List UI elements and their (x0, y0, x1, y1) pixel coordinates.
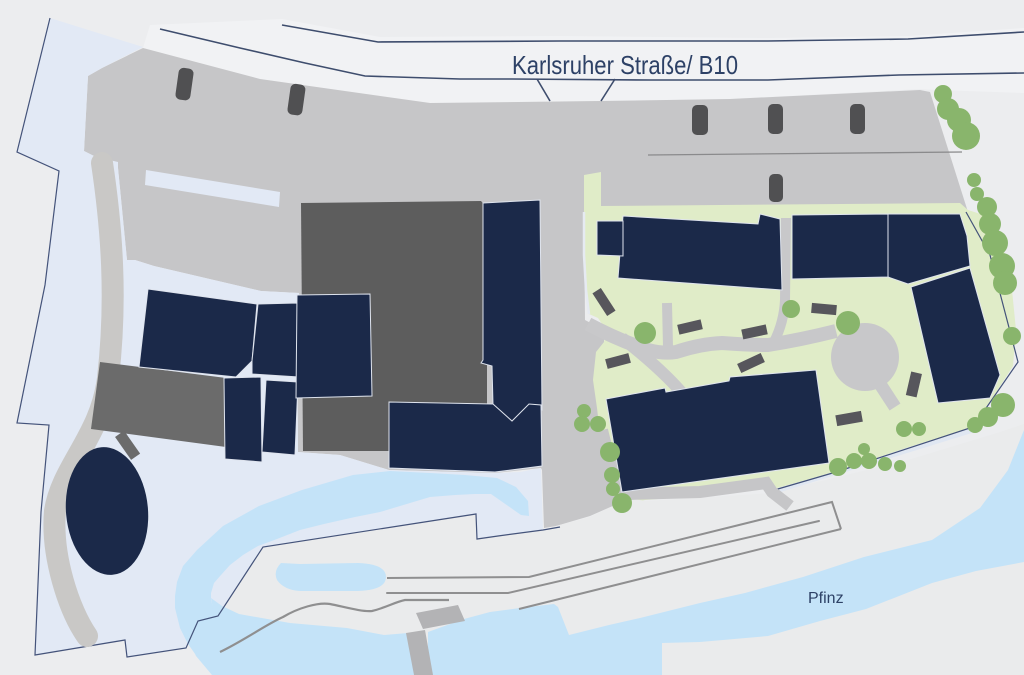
svg-text:Pfinz: Pfinz (808, 590, 844, 607)
svg-text:Karlsruher Straße/ B10: Karlsruher Straße/ B10 (512, 50, 738, 80)
